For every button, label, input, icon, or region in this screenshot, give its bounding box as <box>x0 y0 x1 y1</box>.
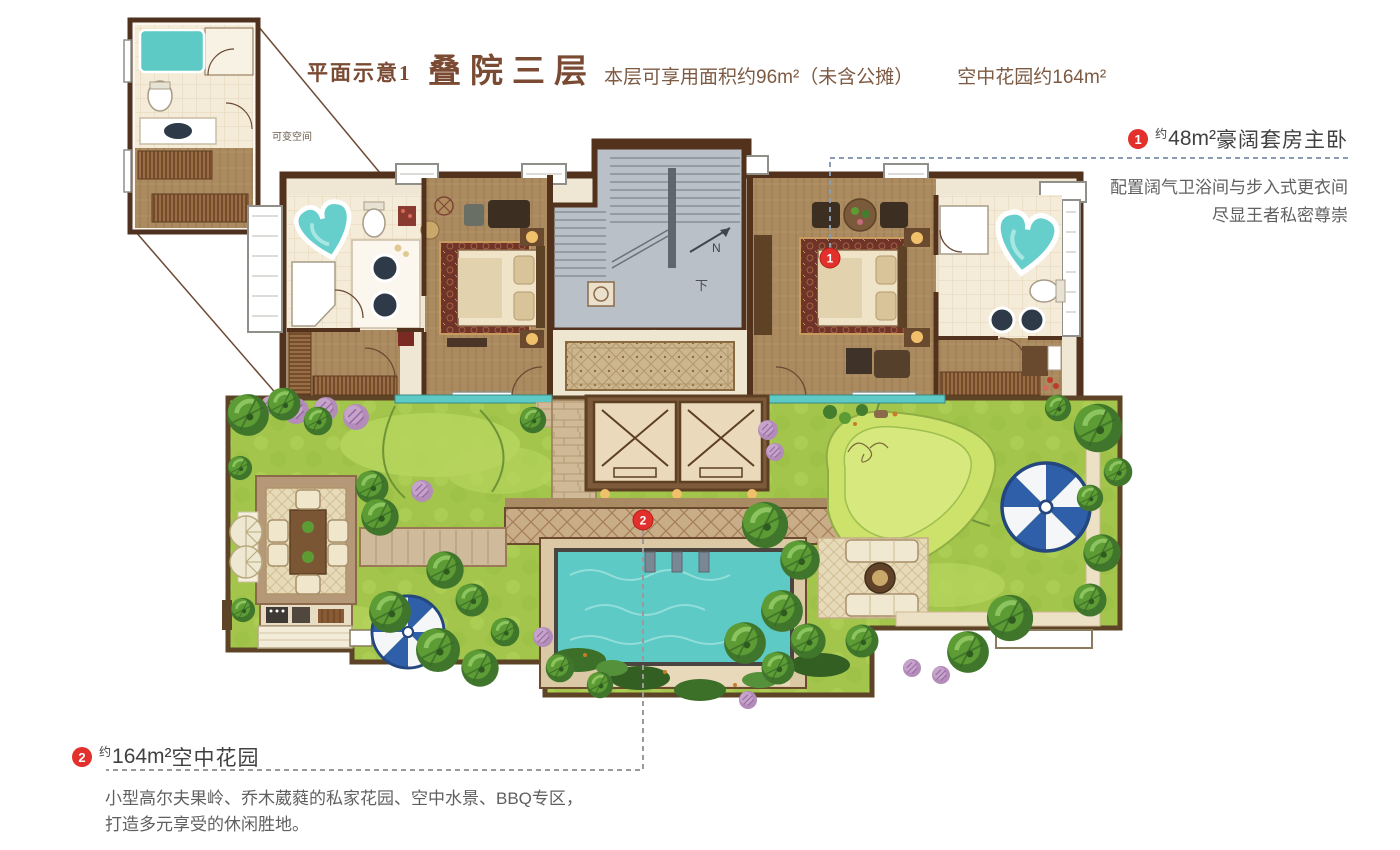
sofa <box>846 540 918 562</box>
marker-1: 1 <box>820 248 840 268</box>
desk <box>846 348 872 374</box>
garden <box>222 388 1132 710</box>
north-label: N <box>712 241 721 255</box>
approx-label: 约 <box>1155 124 1167 142</box>
master-bedroom <box>752 178 936 397</box>
pergola-dining <box>256 476 356 604</box>
armchair <box>880 202 908 228</box>
annotation-master-suite: 约48m²豪阔套房主卧 1 配置阔气卫浴间与步入式更衣间 尽显王者私密尊崇 <box>1110 124 1348 230</box>
armchair <box>488 200 530 228</box>
dresser <box>754 235 772 335</box>
marker-1-badge: 1 <box>1128 129 1148 149</box>
garden-desc-line1: 小型高尔夫果岭、乔木葳蕤的私家花园、空中水景、BBQ专区， <box>105 786 583 812</box>
suite-desc-line2: 尽显王者私密尊崇 <box>1110 202 1348 230</box>
elevator-shafts <box>586 396 768 499</box>
dining-table <box>290 510 326 574</box>
suite-desc-line1: 配置阔气卫浴间与步入式更衣间 <box>1110 174 1348 202</box>
toilet <box>363 209 385 237</box>
sink <box>1020 308 1044 332</box>
approx-label: 约 <box>99 742 111 760</box>
grill <box>266 607 288 623</box>
garden-area: 164m² <box>112 745 172 769</box>
suite-area: 48m² <box>1168 127 1216 151</box>
annotation-sky-garden: 2 约164m²空中花园 小型高尔夫果岭、乔木葳蕤的私家花园、空中水景、BBQ专… <box>72 742 583 839</box>
svg-text:2: 2 <box>640 514 647 528</box>
garden-desc-line2: 打造多元享受的休闲胜地。 <box>105 812 583 838</box>
master-dressing-area <box>938 338 1062 397</box>
hallway <box>552 330 748 397</box>
left-walkin-closet <box>287 330 400 397</box>
marker-2-badge: 2 <box>72 747 92 767</box>
sink <box>990 308 1014 332</box>
svg-text:1: 1 <box>827 252 834 266</box>
inset-label: 可变空间 <box>272 130 312 143</box>
marker-2: 2 <box>633 510 653 530</box>
umbrella <box>1002 463 1090 551</box>
desk-chair <box>874 350 910 378</box>
master-bathroom <box>938 195 1065 338</box>
sink <box>372 292 398 318</box>
garden-title: 空中花园 <box>172 742 260 772</box>
stair-down-label: 下 <box>695 278 708 293</box>
sink <box>372 255 398 281</box>
lounge-seating <box>818 538 928 618</box>
building-plan: N 下 <box>248 142 1086 401</box>
chair <box>464 204 484 226</box>
floorplan-page: 平面示意1 叠院三层 本层可享用面积约96m²（未含公摊）空中花园约164m² <box>0 0 1400 850</box>
armchair <box>812 202 840 228</box>
toilet <box>1030 280 1058 302</box>
hall-carpet <box>566 342 734 390</box>
left-bathroom <box>287 195 422 330</box>
suite-title: 豪阔套房主卧 <box>1216 124 1348 154</box>
flower-shelf <box>398 206 416 226</box>
